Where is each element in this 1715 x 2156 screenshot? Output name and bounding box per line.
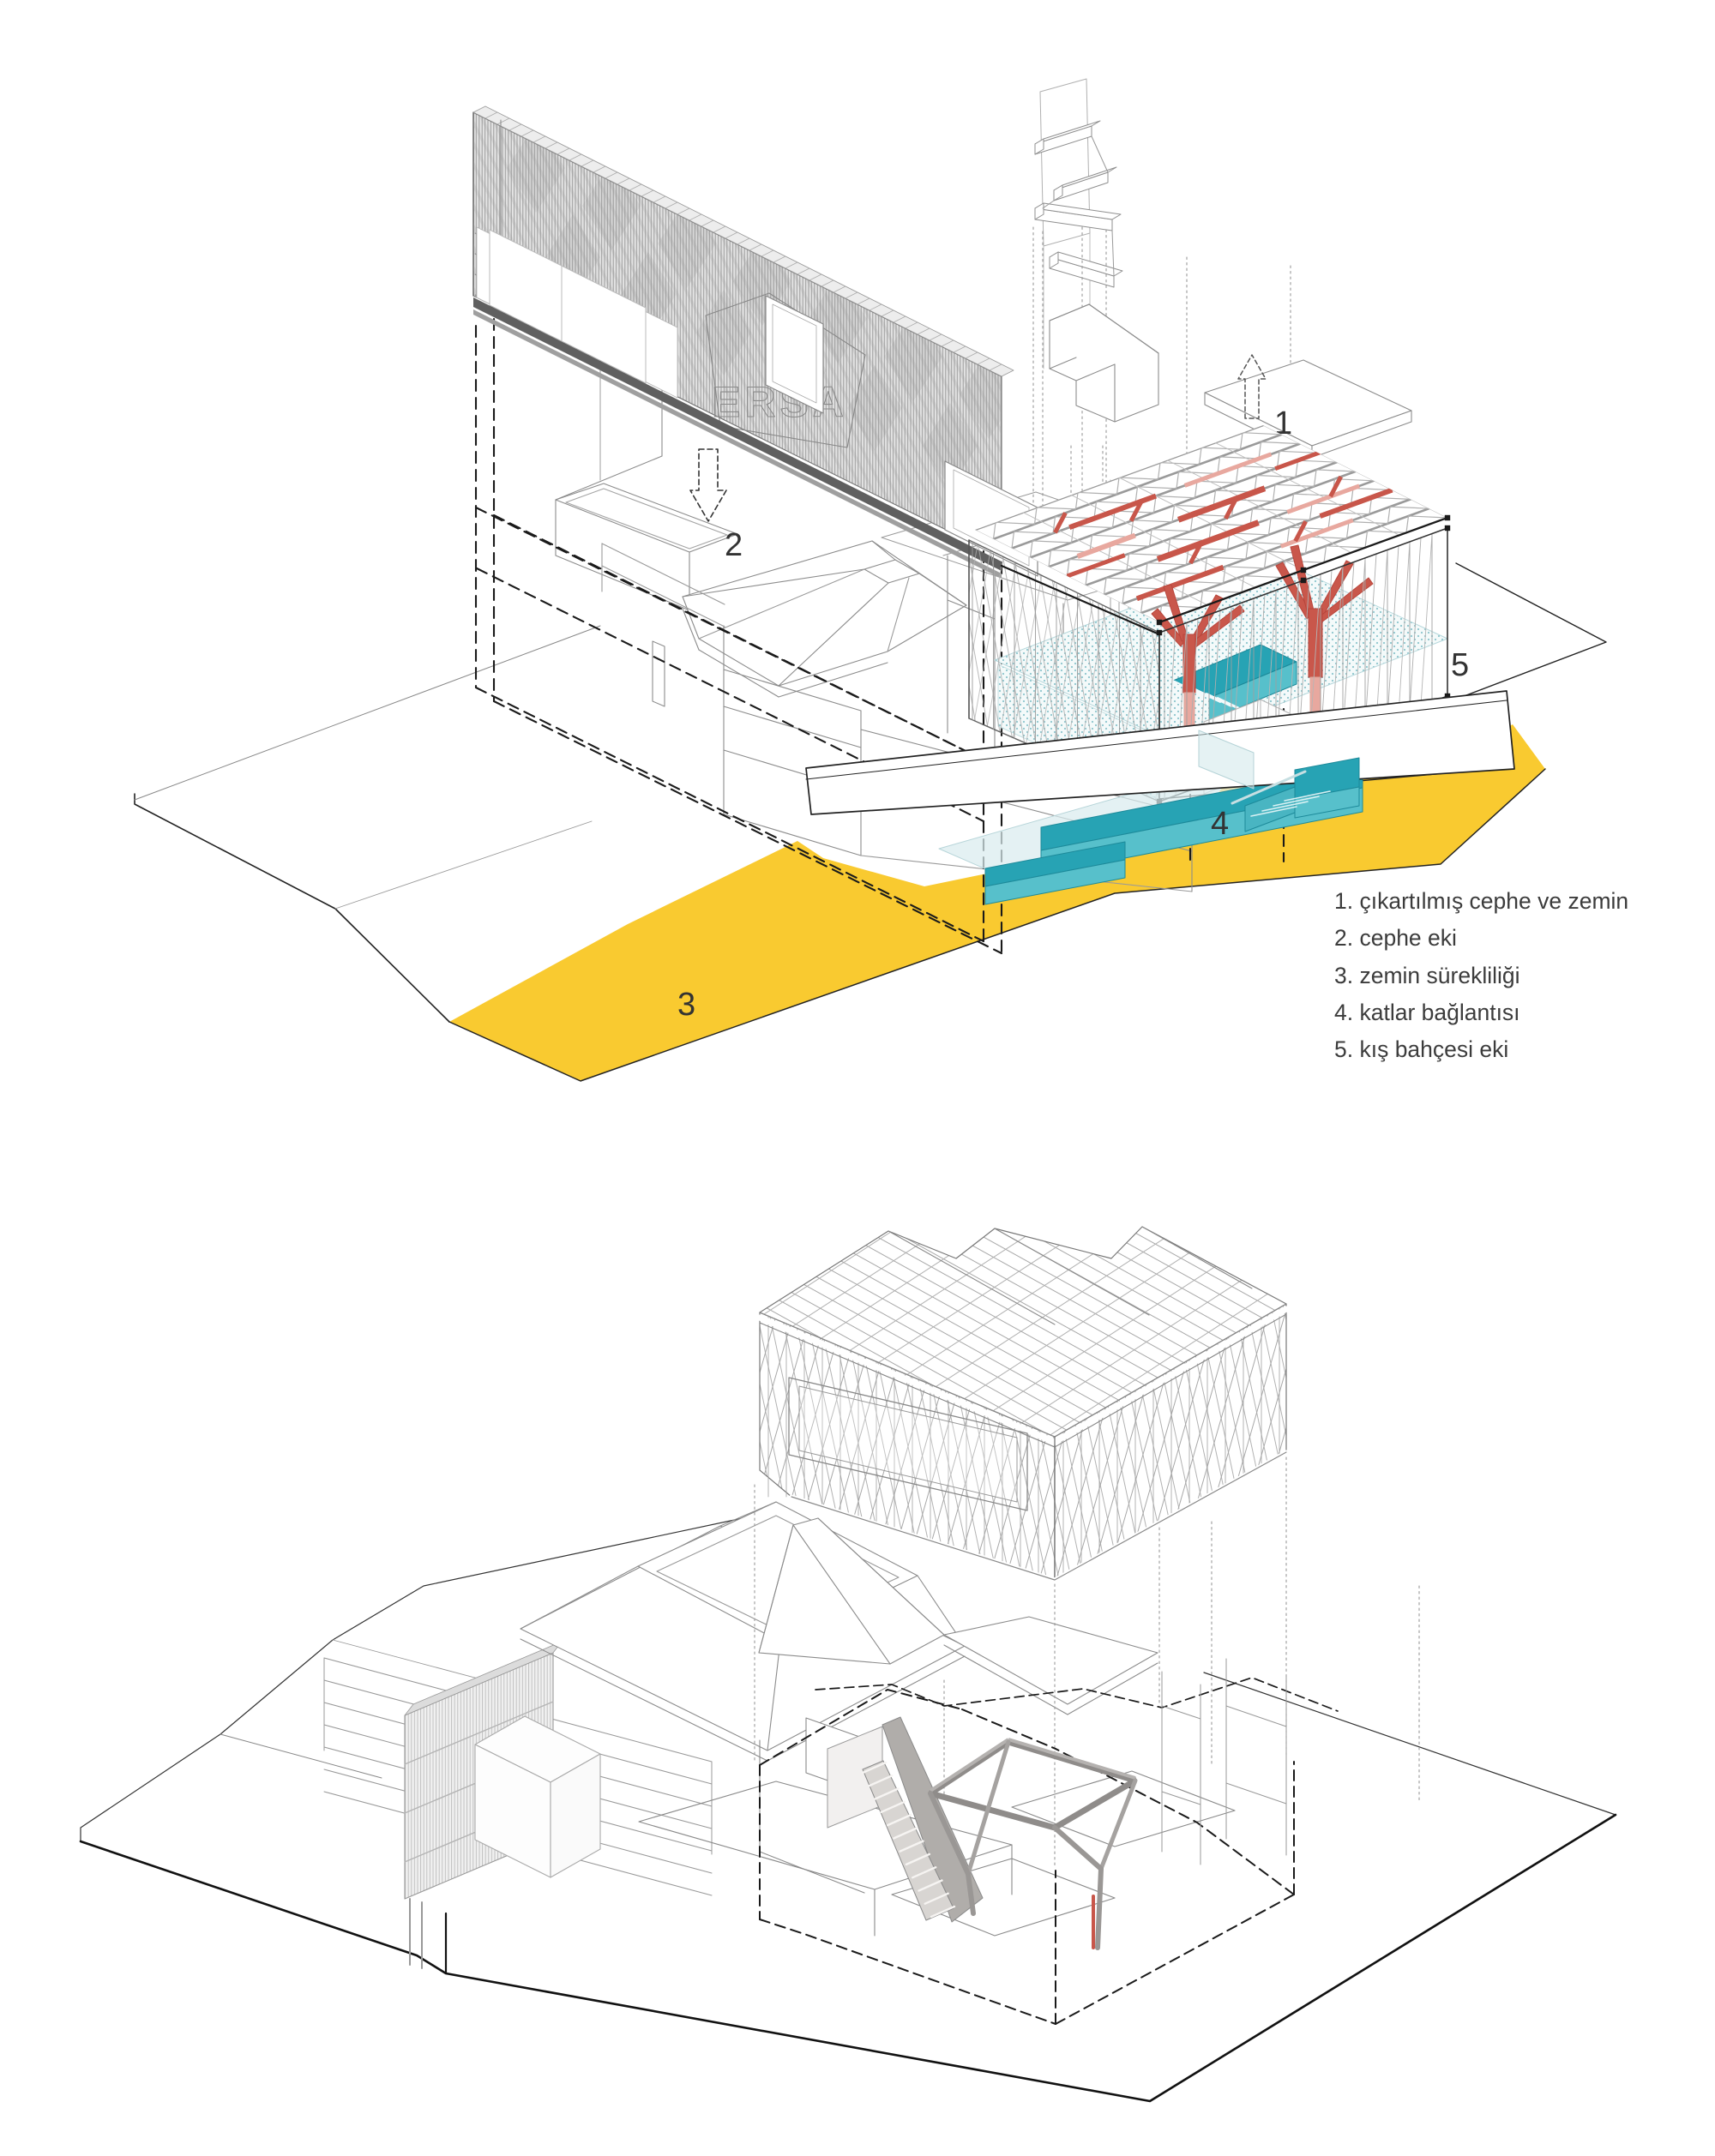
svg-text:4: 4 <box>1211 806 1229 842</box>
svg-text:1. çıkartılmış cephe ve zemin: 1. çıkartılmış cephe ve zemin <box>1334 888 1628 914</box>
svg-text:5: 5 <box>1451 647 1469 683</box>
svg-text:3. zemin sürekliliği: 3. zemin sürekliliği <box>1334 963 1520 988</box>
svg-text:5. kış bahçesi eki: 5. kış bahçesi eki <box>1334 1036 1508 1062</box>
svg-text:3: 3 <box>677 987 695 1023</box>
svg-text:2: 2 <box>725 527 743 563</box>
svg-text:2. cephe eki: 2. cephe eki <box>1334 925 1457 951</box>
svg-text:4. katlar bağlantısı: 4. katlar bağlantısı <box>1334 1000 1520 1025</box>
